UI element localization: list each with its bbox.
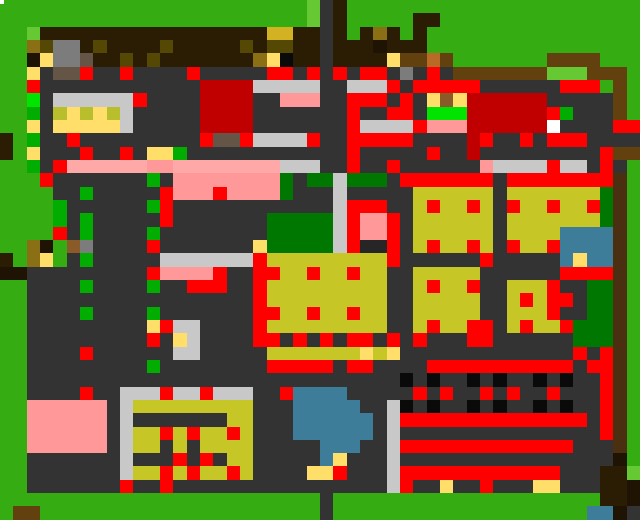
- map-tile: [0, 267, 27, 280]
- map-tile: [27, 160, 40, 173]
- map-tile: [253, 240, 266, 253]
- map-tile: [280, 187, 293, 200]
- map-tile: [373, 427, 386, 440]
- map-tile: [347, 187, 414, 200]
- map-tile: [613, 253, 626, 266]
- map-tile: [293, 173, 306, 186]
- map-tile: [627, 320, 640, 333]
- map-tile: [27, 27, 40, 40]
- landmark-pink-house-west[interactable]: [24, 399, 112, 447]
- map-tile: [253, 400, 293, 413]
- map-tile: [613, 120, 640, 133]
- map-tile: [133, 53, 146, 66]
- map-tile: [253, 387, 280, 400]
- map-tile: [160, 173, 173, 186]
- map-tile: [40, 506, 320, 519]
- map-tile: [453, 93, 466, 106]
- map-tile: [307, 67, 320, 80]
- map-tile: [0, 107, 27, 120]
- map-tile: [387, 413, 400, 426]
- map-tile: [547, 160, 560, 173]
- landmark-saloon-with-npc[interactable]: [344, 87, 416, 145]
- map-tile: [173, 320, 200, 333]
- map-tile: [587, 133, 640, 146]
- map-tile: [600, 373, 613, 386]
- map-tile: [93, 387, 120, 400]
- map-tile: [67, 240, 80, 253]
- landmark-dark-red-warehouse[interactable]: [200, 80, 256, 127]
- map-tile: [293, 67, 306, 80]
- map-tile: [27, 387, 80, 400]
- map-tile: [387, 440, 400, 453]
- map-tile: [400, 160, 480, 173]
- map-tile: [253, 133, 306, 146]
- map-tile: [27, 480, 120, 493]
- map-tile: [0, 506, 13, 519]
- map-tile: [387, 40, 427, 53]
- map-tile: [40, 253, 53, 266]
- map-tile: [40, 53, 53, 66]
- map-tile: [120, 53, 133, 66]
- map-tile: [307, 0, 320, 13]
- map-tile: [347, 0, 640, 13]
- map-tile: [0, 253, 13, 266]
- landmark-yellow-hall-northwest[interactable]: [49, 96, 129, 137]
- map-tile: [627, 413, 640, 426]
- map-tile: [627, 160, 640, 173]
- landmark-pond-small-east[interactable]: [560, 223, 607, 281]
- landmark-brown-house-southeast[interactable]: [600, 447, 640, 520]
- map-tile: [173, 147, 186, 160]
- map-tile: [293, 40, 320, 53]
- map-tile: [93, 147, 120, 160]
- map-tile: [347, 333, 374, 346]
- map-tile: [547, 107, 560, 120]
- map-tile: [173, 200, 333, 213]
- map-tile: [53, 160, 66, 173]
- map-tile: [0, 93, 27, 106]
- map-tile: [453, 53, 546, 66]
- map-tile: [0, 333, 27, 346]
- map-tile: [227, 280, 254, 293]
- map-tile: [27, 93, 40, 106]
- map-tile: [53, 227, 66, 240]
- map-tile: [387, 427, 400, 440]
- map-tile: [53, 40, 80, 53]
- map-tile: [627, 227, 640, 240]
- map-tile: [0, 120, 27, 133]
- map-tile: [93, 280, 146, 293]
- map-tile: [240, 133, 253, 146]
- map-tile: [453, 67, 546, 80]
- map-tile: [0, 280, 27, 293]
- landmark-pink-plaza[interactable]: [176, 174, 279, 199]
- map-tile: [600, 80, 613, 93]
- map-tile: [373, 40, 386, 53]
- map-tile: [293, 333, 306, 346]
- map-tile: [40, 160, 53, 173]
- map-tile: [293, 27, 320, 40]
- map-tile: [40, 173, 53, 186]
- map-tile: [627, 360, 640, 373]
- map-tile: [613, 387, 626, 400]
- map-tile: [53, 187, 80, 200]
- map-tile: [307, 333, 320, 346]
- map-tile: [147, 173, 160, 186]
- map-tile: [27, 67, 40, 80]
- map-tile: [53, 253, 66, 266]
- map-tile: [613, 400, 626, 413]
- map-tile: [587, 293, 614, 306]
- map-tile: [600, 160, 613, 173]
- map-tile: [0, 240, 27, 253]
- map-tile: [613, 373, 626, 386]
- map-tile: [0, 440, 27, 453]
- map-tile: [560, 307, 587, 320]
- map-tile: [493, 253, 560, 266]
- map-tile: [627, 80, 640, 93]
- map-tile: [267, 27, 294, 40]
- map-tile: [27, 133, 40, 146]
- map-tile: [0, 413, 27, 426]
- map-tile: [80, 253, 93, 266]
- map-tile: [227, 267, 254, 280]
- map-tile: [160, 40, 173, 53]
- map-tile: [333, 493, 600, 506]
- map-tile: [53, 53, 80, 66]
- map-tile: [400, 213, 413, 226]
- map-tile: [627, 333, 640, 346]
- map-tile: [147, 93, 200, 106]
- map-tile: [600, 347, 613, 360]
- map-tile: [0, 40, 27, 53]
- map-tile: [27, 347, 80, 360]
- map-tile: [627, 427, 640, 440]
- map-tile: [200, 133, 213, 146]
- map-tile: [27, 40, 40, 53]
- map-tile: [373, 347, 386, 360]
- map-tile: [13, 253, 26, 266]
- map-tile: [147, 320, 160, 333]
- map-tile: [147, 333, 160, 346]
- map-tile: [587, 160, 600, 173]
- map-tile: [267, 53, 280, 66]
- map-tile: [40, 27, 267, 40]
- landmark-crop-field-south[interactable]: [503, 280, 552, 334]
- map-tile: [0, 227, 53, 240]
- map-tile: [547, 120, 560, 133]
- map-tile: [587, 347, 600, 360]
- map-tile: [387, 67, 400, 80]
- map-tile: [613, 427, 626, 440]
- white-pixel: [0, 0, 4, 4]
- map-tile: [347, 360, 374, 373]
- map-tile: [147, 147, 174, 160]
- map-tile: [67, 213, 80, 226]
- map-tile: [133, 147, 146, 160]
- map-tile: [40, 80, 200, 93]
- map-tile: [187, 67, 200, 80]
- map-tile: [560, 320, 573, 333]
- map-tile: [360, 347, 373, 360]
- map-tile: [213, 267, 226, 280]
- map-tile: [67, 227, 80, 240]
- map-tile: [160, 213, 173, 226]
- map-tile: [253, 93, 280, 106]
- map-tile: [347, 13, 414, 26]
- map-tile: [480, 147, 600, 160]
- landmark-striped-depot[interactable]: [400, 360, 600, 490]
- map-tile: [120, 480, 133, 493]
- map-tile: [427, 107, 467, 120]
- map-tile: [373, 413, 386, 426]
- map-tile: [80, 387, 93, 400]
- map-tile: [493, 333, 573, 346]
- map-tile: [627, 307, 640, 320]
- map-tile: [400, 27, 413, 40]
- map-tile: [80, 147, 93, 160]
- map-tile: [240, 40, 253, 53]
- map-tile: [427, 147, 440, 160]
- map-tile: [627, 293, 640, 306]
- landmark-greenhouse-shelves[interactable]: [119, 391, 160, 481]
- map-tile: [467, 133, 480, 146]
- map-tile: [93, 67, 120, 80]
- map-tile: [80, 40, 93, 53]
- map-tile: [0, 0, 307, 13]
- map-tile: [613, 147, 640, 160]
- map-tile: [53, 173, 146, 186]
- map-tile: [387, 160, 400, 173]
- map-tile: [280, 160, 320, 173]
- map-tile: [147, 200, 160, 213]
- map-tile: [0, 133, 13, 146]
- map-tile: [173, 333, 186, 346]
- map-tile: [347, 173, 387, 186]
- game-map[interactable]: [0, 0, 640, 520]
- map-tile: [373, 333, 386, 346]
- map-tile: [0, 67, 27, 80]
- map-tile: [67, 200, 147, 213]
- map-tile: [27, 280, 80, 293]
- map-tile: [67, 253, 80, 266]
- map-tile: [387, 453, 400, 466]
- map-tile: [147, 53, 160, 66]
- map-tile: [147, 280, 160, 293]
- map-tile: [80, 240, 93, 253]
- map-tile: [427, 120, 467, 133]
- map-tile: [147, 160, 174, 173]
- map-tile: [107, 40, 160, 53]
- map-tile: [413, 133, 466, 146]
- map-tile: [347, 147, 360, 160]
- map-tile: [93, 53, 120, 66]
- map-tile: [213, 133, 240, 146]
- map-tile: [40, 67, 53, 80]
- map-tile: [440, 93, 453, 106]
- map-tile: [427, 67, 440, 80]
- map-tile: [80, 53, 93, 66]
- map-tile: [400, 240, 413, 253]
- map-tile: [147, 267, 160, 280]
- map-tile: [0, 27, 27, 40]
- landmark-crop-field-east[interactable]: [415, 263, 480, 334]
- map-tile: [160, 227, 267, 240]
- map-tile: [627, 280, 640, 293]
- map-tile: [133, 67, 186, 80]
- map-tile: [0, 307, 27, 320]
- map-tile: [627, 107, 640, 120]
- map-tile: [80, 280, 93, 293]
- map-tile: [80, 187, 93, 200]
- map-tile: [200, 333, 253, 346]
- map-tile: [360, 67, 387, 80]
- map-tile: [280, 173, 293, 186]
- map-tile: [627, 347, 640, 360]
- map-tile: [27, 240, 40, 253]
- map-tile: [627, 267, 640, 280]
- map-tile: [267, 67, 294, 80]
- map-tile: [280, 333, 293, 346]
- map-tile: [613, 187, 626, 200]
- map-tile: [27, 107, 40, 120]
- map-tile: [613, 293, 626, 306]
- map-tile: [387, 347, 400, 360]
- map-tile: [600, 427, 613, 440]
- map-tile: [413, 333, 426, 346]
- map-tile: [160, 280, 187, 293]
- map-tile: [173, 347, 200, 360]
- map-tile: [413, 13, 440, 26]
- map-tile: [13, 506, 40, 519]
- map-tile: [427, 40, 640, 53]
- map-tile: [53, 67, 80, 80]
- map-tile: [27, 120, 40, 133]
- map-tile: [173, 387, 200, 400]
- map-tile: [93, 307, 146, 320]
- map-tile: [160, 387, 173, 400]
- map-tile: [427, 53, 440, 66]
- map-tile: [613, 360, 626, 373]
- map-tile: [133, 120, 200, 133]
- map-tile: [160, 53, 253, 66]
- map-tile: [627, 240, 640, 253]
- landmark-garden-plots[interactable]: [160, 400, 256, 487]
- map-tile: [0, 293, 27, 306]
- map-tile: [0, 493, 320, 506]
- map-tile: [80, 227, 93, 240]
- map-tile: [187, 280, 227, 293]
- map-tile: [427, 333, 467, 346]
- map-tile: [93, 187, 160, 200]
- map-tile: [627, 173, 640, 186]
- map-tile: [560, 107, 573, 120]
- map-tile: [293, 53, 320, 66]
- landmark-crop-field-central[interactable]: [255, 255, 392, 334]
- map-tile: [213, 387, 253, 400]
- map-tile: [0, 466, 27, 479]
- map-tile: [347, 27, 360, 40]
- map-tile: [253, 40, 266, 53]
- map-tile: [467, 333, 494, 346]
- map-tile: [387, 53, 400, 66]
- map-tile: [147, 360, 160, 373]
- map-tile: [440, 147, 467, 160]
- map-tile: [600, 147, 613, 160]
- landmark-dark-red-barn-east[interactable]: [480, 88, 544, 137]
- map-tile: [173, 40, 240, 53]
- map-tile: [280, 93, 320, 106]
- map-tile: [0, 200, 53, 213]
- map-tile: [573, 320, 613, 333]
- map-tile: [373, 27, 386, 40]
- map-tile: [613, 280, 626, 293]
- map-tile: [200, 320, 253, 333]
- map-tile: [13, 133, 26, 146]
- map-tile: [547, 133, 587, 146]
- map-tile: [0, 13, 307, 26]
- map-tile: [0, 53, 27, 66]
- map-tile: [93, 253, 160, 266]
- map-tile: [27, 80, 40, 93]
- map-tile: [267, 40, 294, 53]
- map-tile: [627, 253, 640, 266]
- map-tile: [387, 27, 400, 40]
- map-tile: [253, 80, 320, 93]
- map-tile: [573, 347, 586, 360]
- map-tile: [360, 27, 373, 40]
- map-tile: [627, 200, 640, 213]
- landmark-red-shrine-pink-roof[interactable]: [351, 206, 392, 254]
- map-tile: [253, 53, 266, 66]
- landmark-pond-large[interactable]: [293, 386, 373, 473]
- map-tile: [387, 173, 400, 186]
- map-tile: [600, 200, 613, 213]
- map-tile: [0, 160, 27, 173]
- map-tile: [400, 67, 413, 80]
- map-tile: [0, 347, 27, 360]
- map-tile: [27, 333, 147, 346]
- map-tile: [440, 67, 453, 80]
- map-tile: [627, 187, 640, 200]
- map-tile: [0, 387, 27, 400]
- map-tile: [40, 147, 80, 160]
- map-tile: [13, 147, 26, 160]
- map-tile: [587, 307, 614, 320]
- map-tile: [200, 387, 213, 400]
- map-tile: [280, 387, 293, 400]
- map-tile: [613, 333, 626, 346]
- map-tile: [360, 160, 387, 173]
- map-tile: [27, 293, 254, 306]
- map-tile: [27, 466, 120, 479]
- map-tile: [0, 373, 27, 386]
- map-tile: [560, 280, 587, 293]
- map-tile: [613, 347, 626, 360]
- map-tile: [0, 480, 27, 493]
- map-tile: [627, 373, 640, 386]
- map-tile: [413, 27, 426, 40]
- map-tile: [0, 360, 27, 373]
- map-tile: [360, 147, 427, 160]
- map-tile: [400, 227, 413, 240]
- map-tile: [53, 200, 66, 213]
- map-tile: [0, 453, 27, 466]
- map-tile: [627, 67, 640, 80]
- map-tile: [480, 267, 560, 280]
- map-tile: [560, 160, 587, 173]
- map-tile: [40, 240, 53, 253]
